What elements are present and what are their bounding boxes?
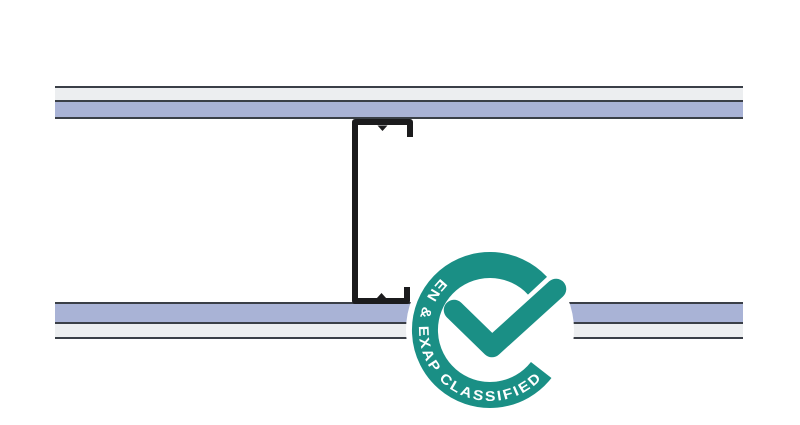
stud-top-dimple-mark: [378, 126, 388, 132]
partition-plan-diagram: EN & EXAP CLASSIFIED: [0, 0, 800, 425]
diagram-overlay: EN & EXAP CLASSIFIED: [0, 0, 800, 425]
c-stud-profile: [355, 122, 410, 301]
en-exap-classified-badge: EN & EXAP CLASSIFIED: [406, 246, 574, 414]
c-stud-section: [355, 122, 410, 301]
stud-bottom-dimple-mark: [377, 293, 387, 299]
